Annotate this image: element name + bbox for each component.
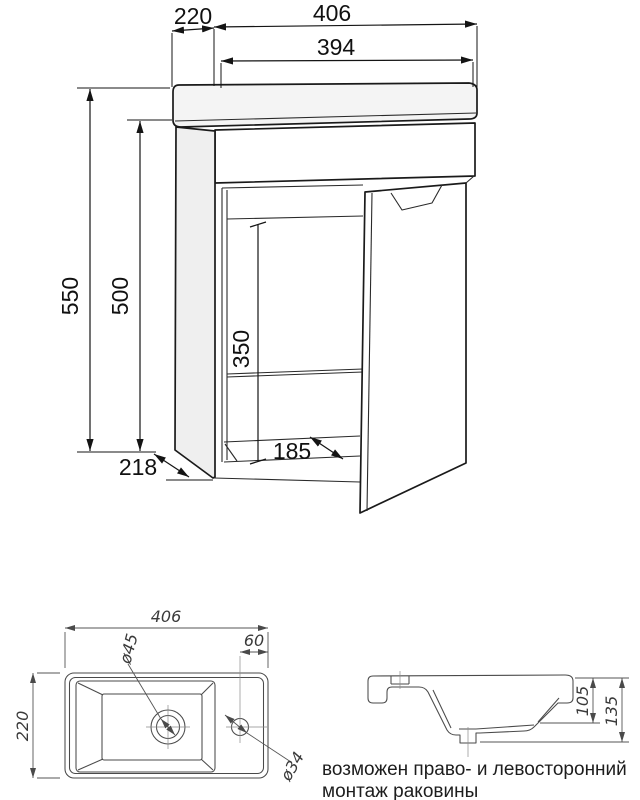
front-view: 220 406 394 550 500 350 185 218 [57, 0, 477, 513]
dim-height-overall: 550 [57, 277, 83, 315]
cabinet-door-open [360, 176, 474, 513]
apron-panel [215, 123, 475, 183]
dim-width-inner: 394 [317, 34, 356, 60]
topview-dim-faucet-offset: 60 [244, 631, 264, 650]
left-side-panel [175, 127, 215, 478]
note-line-2: монтаж раковины [322, 781, 478, 800]
dim-cabinet-height: 500 [107, 277, 133, 315]
sink-profile [368, 675, 573, 743]
topview-dim-width: 406 [151, 607, 182, 626]
bottom-panel-edge [214, 478, 360, 482]
dim-interior-height: 350 [228, 330, 254, 368]
dim-depth-top: 220 [174, 3, 212, 29]
interior-top-rail [227, 216, 363, 219]
topview-dim-drain: ø45 [115, 632, 141, 667]
technical-drawing-page: 220 406 394 550 500 350 185 218 [0, 0, 640, 800]
topview-dim-faucet: ø34 [276, 748, 308, 784]
door-panel [360, 183, 466, 513]
side-view: 105 135 [368, 671, 629, 757]
sideview-dim-total-height: 135 [602, 696, 621, 727]
vanity-technical-drawing: 220 406 394 550 500 350 185 218 [0, 0, 640, 800]
dim-width-overall: 406 [313, 0, 351, 26]
topview-dim-depth: 220 [13, 711, 32, 742]
note-line-1: возможен право- и левосторонний [322, 759, 627, 780]
top-view: 406 60 220 ø45 ø34 [13, 607, 308, 785]
dim-depth-bottom: 218 [119, 454, 157, 480]
dim-interior-depth: 185 [273, 438, 311, 464]
sideview-dim-basin-depth: 105 [573, 686, 592, 717]
sink-top-slab [173, 83, 477, 127]
basin-top-edge [76, 681, 215, 772]
opening-top-edge [222, 185, 363, 188]
mounting-note: возможен право- и левосторонний монтаж р… [322, 759, 627, 800]
